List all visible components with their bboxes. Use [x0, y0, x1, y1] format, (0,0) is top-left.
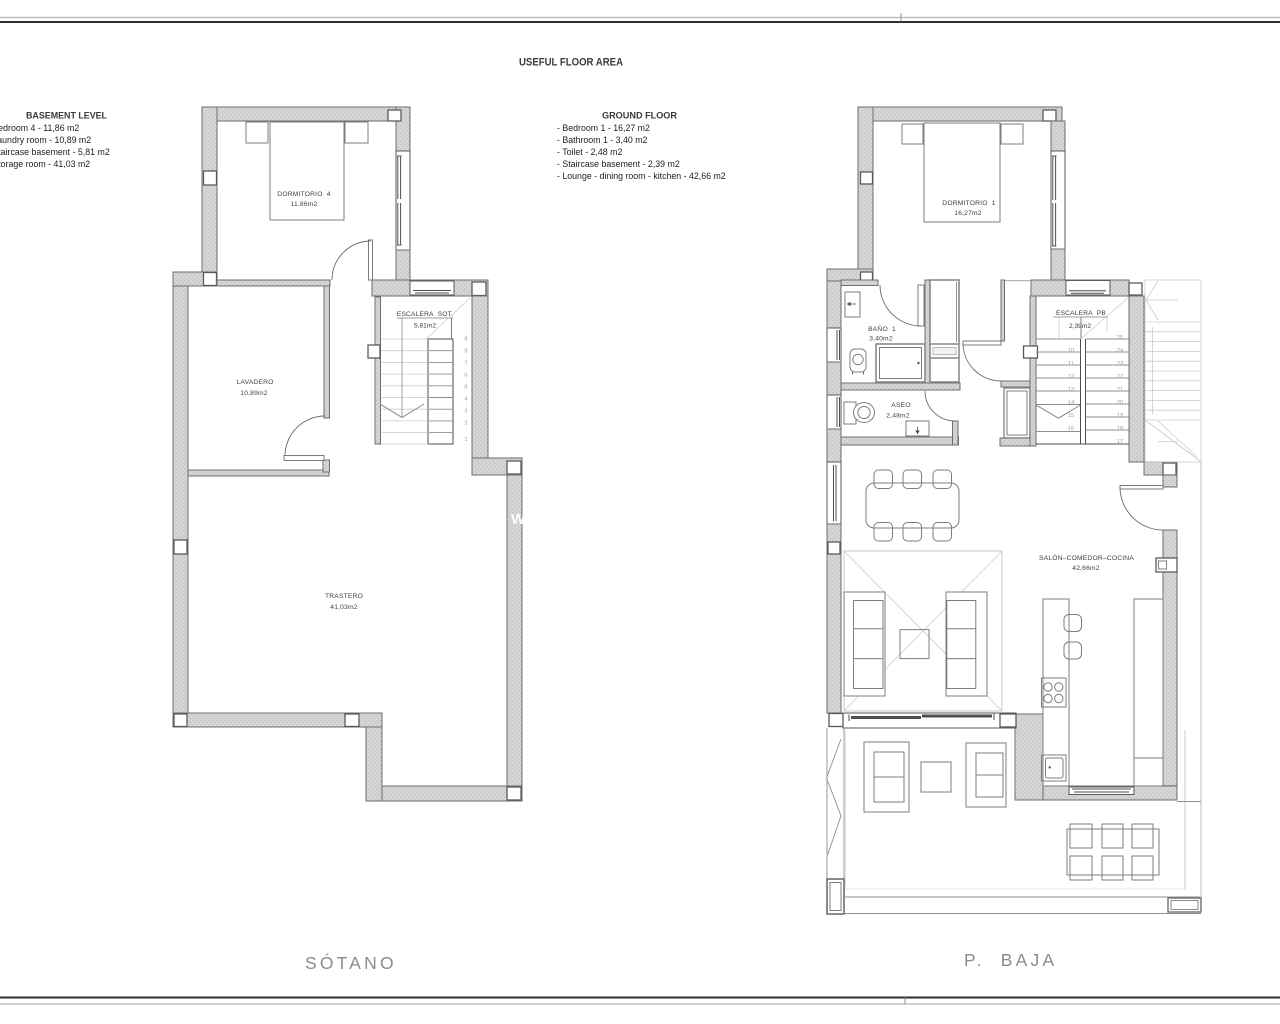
svg-text:- Bedroom 1 - 16,27 m2: - Bedroom 1 - 16,27 m2: [557, 123, 650, 133]
svg-text:9: 9: [464, 337, 467, 343]
svg-text:21: 21: [1117, 387, 1123, 393]
svg-text:TRASTERO: TRASTERO: [325, 593, 363, 600]
svg-text:20: 20: [1117, 400, 1123, 406]
svg-text:USEFUL FLOOR AREA: USEFUL FLOOR AREA: [519, 57, 623, 69]
svg-text:- Laundry room - 10,89 m2: - Laundry room - 10,89 m2: [0, 135, 91, 145]
svg-text:10: 10: [1068, 348, 1074, 354]
svg-text:2: 2: [464, 421, 467, 427]
svg-text:BAÑO 1: BAÑO 1: [868, 324, 896, 333]
svg-text:LAVADERO: LAVADERO: [236, 379, 273, 386]
svg-text:14: 14: [1068, 400, 1075, 406]
svg-text:ESCALERA SOT.: ESCALERA SOT.: [397, 311, 453, 318]
svg-text:- Staircase basement - 5,81 m2: - Staircase basement - 5,81 m2: [0, 147, 110, 157]
svg-text:2,48m2: 2,48m2: [886, 413, 910, 420]
svg-text:DORMITORIO 1: DORMITORIO 1: [942, 200, 995, 207]
svg-text:11,86m2: 11,86m2: [291, 201, 318, 208]
svg-text:1: 1: [464, 437, 467, 443]
svg-text:W: W: [511, 511, 526, 528]
svg-text:- Bathroom 1 - 3,40 m2: - Bathroom 1 - 3,40 m2: [557, 135, 648, 145]
svg-text:16,27m2: 16,27m2: [954, 210, 982, 217]
svg-text:5,81m2: 5,81m2: [414, 323, 436, 330]
svg-text:17: 17: [1117, 439, 1123, 445]
svg-text:5: 5: [464, 385, 467, 391]
svg-text:10,89m2: 10,89m2: [240, 390, 268, 397]
svg-text:41,03m2: 41,03m2: [330, 604, 358, 611]
svg-text:16: 16: [1068, 426, 1074, 432]
svg-text:3: 3: [464, 409, 467, 415]
svg-text:DORMITORIO 4: DORMITORIO 4: [277, 191, 330, 198]
svg-text:P. BAJA: P. BAJA: [964, 950, 1057, 970]
svg-text:18: 18: [1117, 426, 1123, 432]
svg-text:13: 13: [1068, 387, 1074, 393]
svg-text:22: 22: [1117, 374, 1123, 380]
svg-text:12: 12: [1068, 374, 1074, 380]
svg-text:SÓTANO: SÓTANO: [305, 952, 397, 973]
svg-text:SALÓN–COMEDOR–COCINA: SALÓN–COMEDOR–COCINA: [1039, 553, 1134, 562]
svg-text:- Toilet - 2,48 m2: - Toilet - 2,48 m2: [557, 147, 622, 157]
svg-text:15: 15: [1068, 413, 1074, 419]
svg-text:42,66m2: 42,66m2: [1072, 565, 1100, 572]
svg-text:BASEMENT LEVEL: BASEMENT LEVEL: [26, 110, 107, 121]
svg-text:23: 23: [1117, 361, 1123, 367]
svg-text:11: 11: [1068, 361, 1074, 367]
svg-text:6: 6: [464, 373, 467, 379]
svg-text:GROUND FLOOR: GROUND FLOOR: [602, 110, 677, 121]
svg-text:7: 7: [464, 361, 467, 367]
svg-text:- Storage room - 41,03 m2: - Storage room - 41,03 m2: [0, 159, 90, 169]
svg-text:- Lounge - dining room - kitch: - Lounge - dining room - kitchen - 42,66…: [557, 171, 726, 181]
svg-text:- Bedroom 4 - 11,86 m2: - Bedroom 4 - 11,86 m2: [0, 123, 79, 133]
svg-text:ASEO: ASEO: [891, 402, 910, 409]
svg-text:2,39m2: 2,39m2: [1069, 323, 1091, 330]
svg-text:24: 24: [1117, 348, 1124, 354]
svg-text:ESCALERA PB: ESCALERA PB: [1056, 310, 1106, 317]
svg-text:- Staircase basement - 2,39 m2: - Staircase basement - 2,39 m2: [557, 159, 680, 169]
svg-text:25: 25: [1117, 335, 1123, 341]
svg-text:8: 8: [464, 349, 467, 355]
svg-text:3,40m2: 3,40m2: [869, 336, 893, 343]
svg-text:19: 19: [1117, 413, 1123, 419]
